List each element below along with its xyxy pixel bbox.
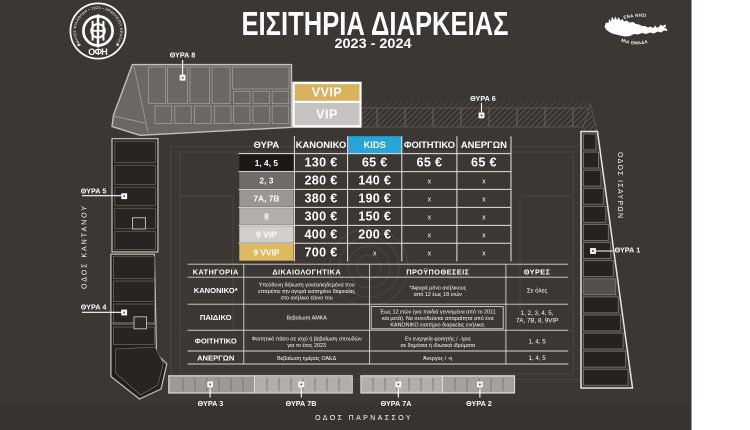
svg-text:1, 4, 5: 1, 4, 5 (255, 158, 279, 168)
svg-text:190 €: 190 € (358, 192, 391, 206)
svg-text:ΟΔΟΣ ΙΣΑΥΡΩΝ: ΟΔΟΣ ΙΣΑΥΡΩΝ (616, 152, 623, 220)
svg-text:σε δημόσια ή ιδιωτικά ιδρύματα: σε δημόσια ή ιδιωτικά ιδρύματα (400, 342, 475, 349)
svg-text:7Α, 7Β: 7Α, 7Β (253, 194, 279, 204)
svg-text:ΘΥΡΑ 5: ΘΥΡΑ 5 (81, 186, 107, 195)
svg-text:2, 3: 2, 3 (259, 176, 273, 186)
svg-text:x: x (482, 179, 486, 186)
svg-text:ΦΟΙΤΗΤΙΚΟ: ΦΟΙΤΗΤΙΚΟ (195, 336, 237, 345)
svg-text:ΟΔΟΣ ΠΑΡΝΑΣΣΟΥ: ΟΔΟΣ ΠΑΡΝΑΣΣΟΥ (315, 415, 413, 422)
svg-text:7Α, 7Β, 8, 9VIP: 7Α, 7Β, 8, 9VIP (516, 317, 558, 324)
svg-text:KIDS: KIDS (363, 139, 385, 150)
svg-text:1, 4, 5: 1, 4, 5 (528, 338, 546, 345)
svg-text:στο ανήλικο τέκνο του: στο ανήλικο τέκνο του (281, 294, 333, 301)
svg-text:ΦΟΙΤΗΤΙΚΟ: ΦΟΙΤΗΤΙΚΟ (404, 139, 455, 150)
svg-text:140 €: 140 € (358, 174, 391, 188)
svg-text:ΚΑΝΟΝΙΚΟ: ΚΑΝΟΝΙΚΟ (296, 139, 347, 150)
svg-text:200 €: 200 € (358, 228, 391, 242)
svg-text:ΘΥΡΑ 8: ΘΥΡΑ 8 (170, 51, 196, 60)
svg-text:8: 8 (264, 212, 269, 222)
svg-text:ΑΝΕΡΓΩΝ: ΑΝΕΡΓΩΝ (461, 139, 507, 150)
svg-text:Εν ενεργεία φοιτητής / -τρια: Εν ενεργεία φοιτητής / -τρια (405, 335, 471, 342)
svg-text:1, 2, 3, 4, 5,: 1, 2, 3, 4, 5, (521, 310, 554, 317)
svg-text:9 VVIP: 9 VVIP (253, 248, 279, 258)
svg-text:x: x (482, 233, 486, 240)
svg-text:*Αφορά μόνο ανήλικους: *Αφορά μόνο ανήλικους (409, 285, 466, 292)
svg-text:ΚΑΝΟΝΙΚΟ εισιτήριο διαρκείας ε: ΚΑΝΟΝΙΚΟ εισιτήριο διαρκείας ενήλικα. (390, 321, 485, 328)
svg-text:ΠΑΙΔΙΚΟ: ΠΑΙΔΙΚΟ (200, 313, 232, 322)
svg-text:επιτρέπει την αγορά εισιτηρίου: επιτρέπει την αγορά εισιτηρίου διαρκείας (258, 288, 355, 295)
svg-text:Έως 12 ετών (για παιδιά γεννημ: Έως 12 ετών (για παιδιά γεννημένα από το… (379, 308, 496, 315)
svg-text:2023 - 2024: 2023 - 2024 (335, 35, 412, 51)
svg-text:ΘΥΡΕΣ: ΘΥΡΕΣ (524, 267, 551, 276)
svg-text:380 €: 380 € (304, 192, 337, 206)
svg-text:x: x (482, 251, 486, 258)
svg-text:ΘΥΡΑ 3: ΘΥΡΑ 3 (198, 399, 224, 408)
svg-text:ΔΙΚΑΙΟΛΟΓΗΤΙΚΑ: ΔΙΚΑΙΟΛΟΓΗΤΙΚΑ (272, 267, 341, 276)
svg-text:ΘΥΡΑ 1: ΘΥΡΑ 1 (615, 245, 641, 254)
svg-text:65 €: 65 € (471, 156, 497, 170)
svg-text:Φοιτητικό πάσο σε ισχύ ή βεβαί: Φοιτητικό πάσο σε ισχύ ή βεβαίωση σπουδώ… (252, 335, 362, 342)
svg-text:x: x (373, 251, 377, 258)
svg-text:ΘΥΡΑ 7Β: ΘΥΡΑ 7Β (286, 399, 317, 408)
svg-text:ΚΑΝΟΝΙΚΟ*: ΚΑΝΟΝΙΚΟ* (194, 286, 238, 295)
svg-text:VVIP: VVIP (312, 86, 343, 100)
svg-text:ΚΑΤΗΓΟΡΙΑ: ΚΑΤΗΓΟΡΙΑ (193, 267, 239, 276)
svg-text:65 €: 65 € (362, 156, 388, 170)
svg-text:1, 4, 5: 1, 4, 5 (528, 355, 546, 362)
svg-text:ΘΥΡΑ 6: ΘΥΡΑ 6 (470, 94, 496, 103)
svg-text:ΠΡΟΫΠΟΘΕΣΕΙΣ: ΠΡΟΫΠΟΘΕΣΕΙΣ (406, 267, 469, 276)
svg-text:Βεβαίωση ημέρας ΟΑΕΔ: Βεβαίωση ημέρας ΟΑΕΔ (277, 355, 337, 362)
svg-text:400 €: 400 € (304, 228, 337, 242)
svg-text:300 €: 300 € (304, 210, 337, 224)
svg-text:x: x (428, 215, 432, 222)
svg-text:150 €: 150 € (358, 210, 391, 224)
svg-text:ΘΥΡΑ: ΘΥΡΑ (254, 139, 280, 150)
svg-text:700 €: 700 € (304, 245, 337, 259)
svg-text:x: x (428, 197, 432, 204)
svg-text:ΑΝΕΡΓΩΝ: ΑΝΕΡΓΩΝ (197, 353, 234, 362)
svg-text:και μετά). Να συνοδεύεται απαρ: και μετά). Να συνοδεύεται απαραίτητα από… (382, 315, 494, 322)
svg-text:ΘΥΡΑ 7Α: ΘΥΡΑ 7Α (381, 399, 412, 408)
svg-text:x: x (428, 179, 432, 186)
svg-text:x: x (482, 197, 486, 204)
svg-text:ΘΥΡΑ 4: ΘΥΡΑ 4 (81, 303, 107, 312)
svg-text:Άνεργος / -η: Άνεργος / -η (423, 356, 452, 362)
svg-text:από 12 έως 18 ετών: από 12 έως 18 ετών (414, 291, 463, 298)
svg-text:Σε όλες: Σε όλες (527, 288, 547, 295)
svg-text:για το έτος 2023: για το έτος 2023 (287, 342, 326, 349)
svg-text:Υπεύθυνη δήλωση γονέα/κηδεμόνα: Υπεύθυνη δήλωση γονέα/κηδεμόνα που (259, 281, 355, 288)
svg-text:x: x (428, 233, 432, 240)
svg-text:ΘΥΡΑ 2: ΘΥΡΑ 2 (466, 399, 492, 408)
svg-text:65 €: 65 € (417, 156, 443, 170)
svg-text:VIP: VIP (316, 107, 338, 121)
svg-text:ΟΦΗ: ΟΦΗ (88, 47, 108, 57)
svg-text:130 €: 130 € (304, 156, 337, 170)
svg-text:9 VIP: 9 VIP (256, 230, 277, 240)
svg-text:x: x (482, 215, 486, 222)
svg-text:ΟΔΟΣ ΚΑΝΤΑΝΟΥ: ΟΔΟΣ ΚΑΝΤΑΝΟΥ (82, 204, 89, 289)
svg-text:x: x (428, 251, 432, 258)
svg-text:280 €: 280 € (304, 174, 337, 188)
svg-text:Βεβαίωση ΑΜΚΑ: Βεβαίωση ΑΜΚΑ (286, 315, 327, 321)
